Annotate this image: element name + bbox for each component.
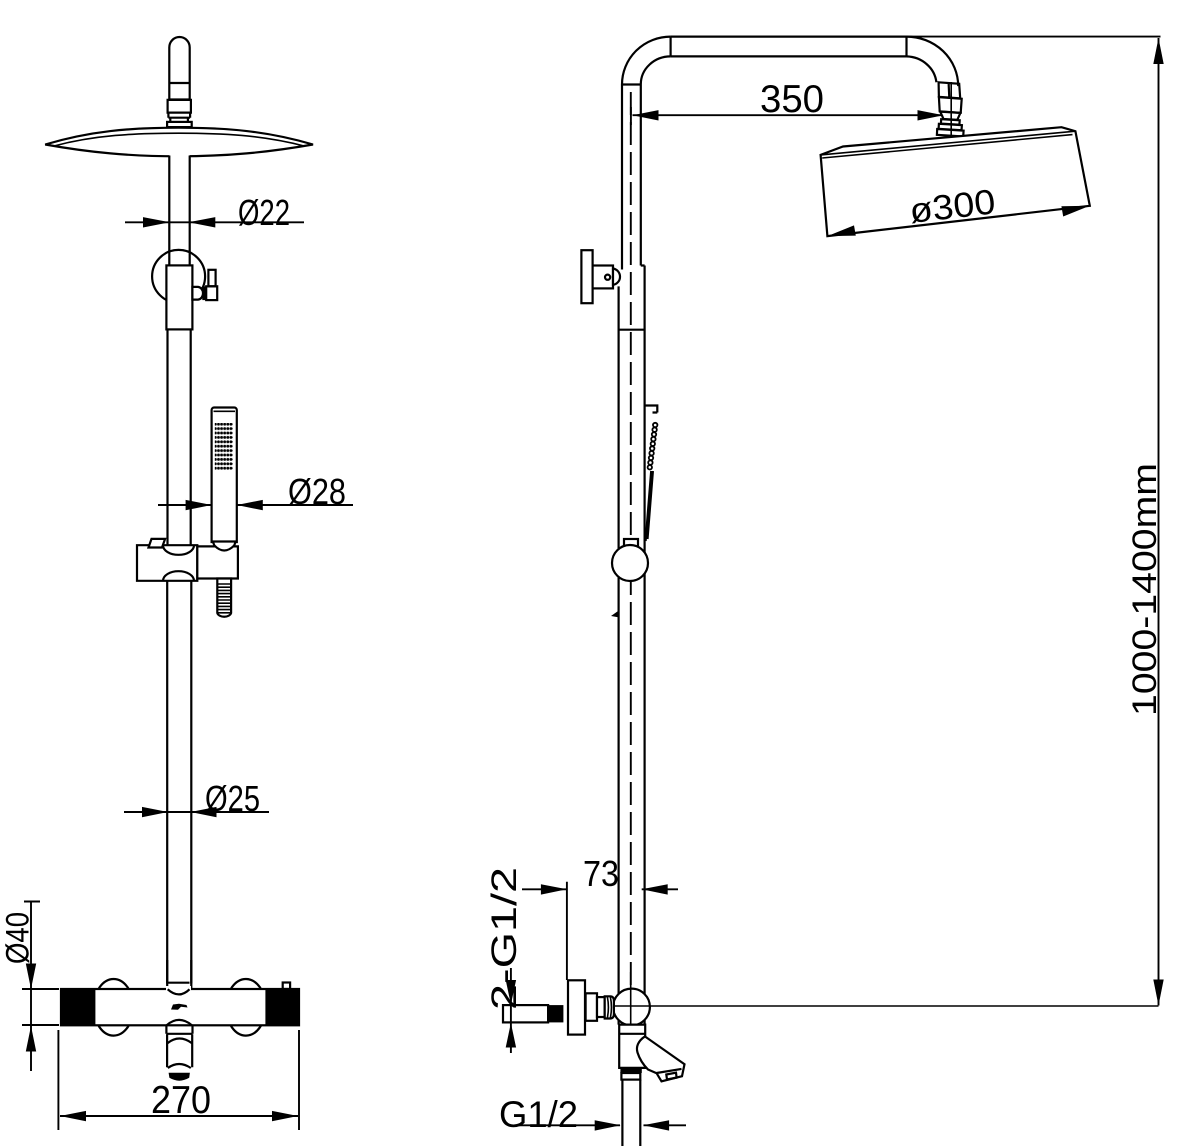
svg-text:2-G1/2: 2-G1/2 bbox=[485, 867, 524, 1010]
svg-text:1000-1400mm: 1000-1400mm bbox=[1126, 463, 1164, 716]
svg-text:Ø40: Ø40 bbox=[0, 912, 36, 964]
svg-text:270: 270 bbox=[151, 1079, 211, 1122]
svg-text:Ø25: Ø25 bbox=[205, 778, 260, 819]
svg-text:350: 350 bbox=[760, 78, 824, 121]
svg-text:G1/2: G1/2 bbox=[499, 1094, 578, 1135]
svg-text:73: 73 bbox=[583, 853, 619, 894]
svg-text:Ø28: Ø28 bbox=[288, 471, 346, 512]
svg-text:Ø22: Ø22 bbox=[238, 192, 290, 233]
